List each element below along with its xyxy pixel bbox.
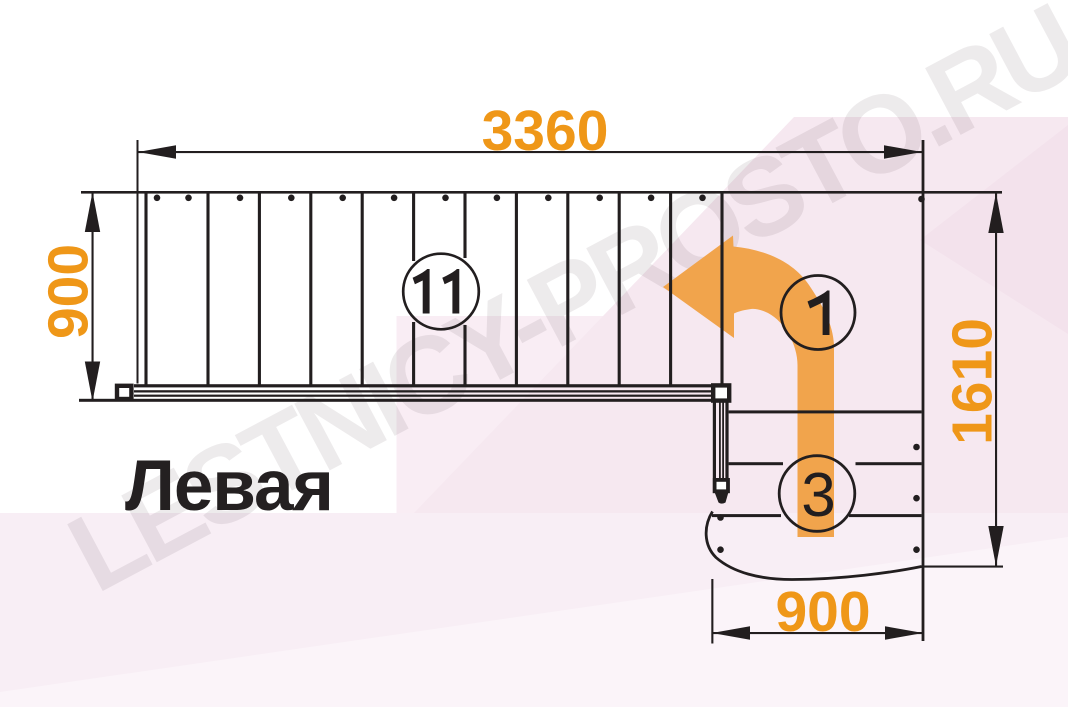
svg-text:1610: 1610 — [941, 318, 1005, 445]
svg-text:900: 900 — [37, 244, 101, 339]
svg-text:3360: 3360 — [482, 99, 609, 163]
svg-text:3: 3 — [801, 461, 835, 530]
svg-text:Левая: Левая — [125, 447, 333, 526]
svg-text:900: 900 — [775, 580, 870, 644]
